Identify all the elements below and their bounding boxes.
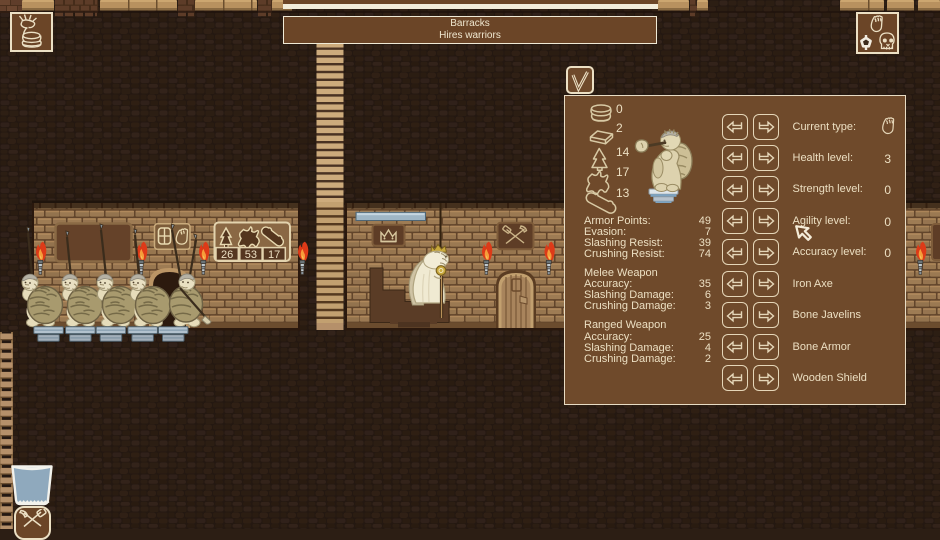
- svg-text:53: 53: [245, 249, 257, 261]
- svg-text:17: 17: [268, 249, 280, 261]
- svg-text:26: 26: [221, 249, 233, 261]
